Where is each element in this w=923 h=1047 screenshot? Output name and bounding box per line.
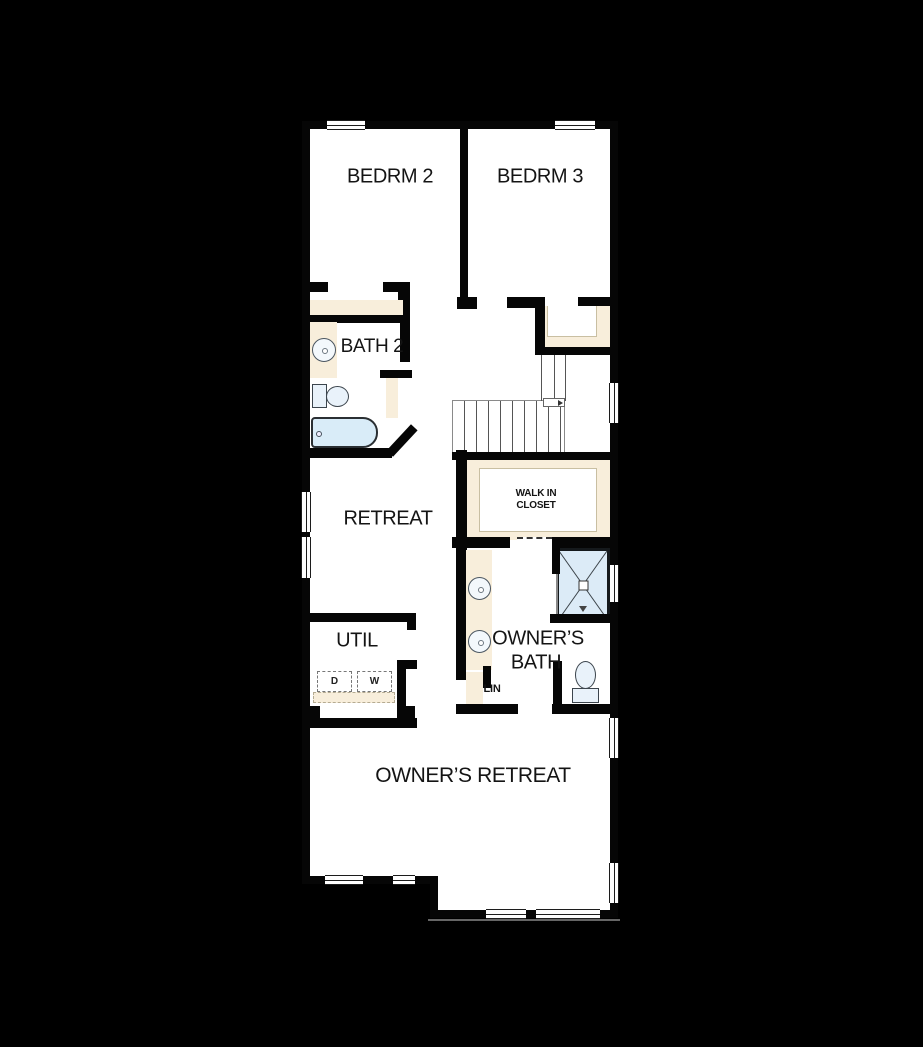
shower-drain-icon bbox=[579, 606, 587, 612]
linen-closet-floor bbox=[466, 672, 483, 704]
window bbox=[393, 875, 415, 885]
dryer-icon: D bbox=[317, 671, 352, 692]
window bbox=[609, 565, 619, 602]
shower-door-line bbox=[556, 574, 558, 614]
stair-flight-line bbox=[554, 355, 555, 401]
window bbox=[327, 120, 365, 130]
room-label-walk-in-closet: WALK IN CLOSET bbox=[516, 488, 557, 512]
window bbox=[609, 863, 619, 903]
toilet-tank-icon bbox=[312, 384, 327, 408]
room-label-retreat: RETREAT bbox=[343, 508, 432, 531]
dryer-label: D bbox=[331, 676, 338, 687]
wall-bath2-door-stub bbox=[380, 370, 412, 378]
floor-area-lower-right bbox=[430, 850, 614, 914]
wall-bedroom-divider-stub bbox=[457, 297, 477, 309]
washer-icon: W bbox=[357, 671, 392, 692]
window bbox=[536, 909, 600, 919]
toilet-bowl-icon bbox=[575, 661, 596, 689]
room-label-bedrm3: BEDRM 3 bbox=[497, 166, 583, 189]
wall-bath2-bottom bbox=[302, 448, 392, 458]
window bbox=[555, 120, 595, 130]
stairs bbox=[452, 400, 565, 453]
wall-util-bottom bbox=[306, 718, 417, 728]
wall-wic-left bbox=[456, 450, 467, 550]
stair-direction-arrow-icon bbox=[558, 400, 563, 406]
wall-wic-top bbox=[452, 452, 614, 460]
bedrm2-closet-shelf bbox=[310, 300, 403, 315]
wall-exterior-bottom-left bbox=[302, 876, 438, 884]
wall-wic-bottom-left bbox=[452, 537, 510, 548]
wic-door-opening bbox=[517, 537, 552, 548]
room-label-owners-retreat: OWNER’S RETREAT bbox=[375, 764, 570, 788]
walk-in-closet-line2: CLOSET bbox=[516, 500, 557, 512]
window bbox=[609, 718, 619, 758]
wall-bedrm2-closet-left-stub bbox=[302, 282, 328, 292]
room-label-linen: LIN bbox=[483, 683, 500, 695]
window bbox=[609, 383, 619, 423]
room-label-util: UTIL bbox=[336, 630, 378, 653]
bathtub-icon bbox=[311, 417, 378, 448]
washer-label: W bbox=[370, 676, 379, 687]
porch-edge-line bbox=[428, 919, 620, 921]
wall-util-right-stub bbox=[406, 660, 417, 669]
wall-shower-left-stub bbox=[552, 548, 560, 574]
room-label-owners-bath-line1: OWNER’S bbox=[492, 628, 584, 651]
stair-flight-line bbox=[541, 355, 542, 401]
window bbox=[301, 492, 311, 532]
window bbox=[325, 875, 363, 885]
wall-util-top bbox=[306, 613, 416, 622]
wall-shower-bottom bbox=[550, 614, 614, 623]
wall-obath-bottom-left bbox=[456, 704, 518, 714]
wall-bedroom-divider bbox=[460, 129, 468, 298]
toilet-tank-icon bbox=[572, 688, 599, 703]
room-label-bedrm2: BEDRM 2 bbox=[347, 166, 433, 189]
window bbox=[486, 909, 526, 919]
sink-icon bbox=[312, 338, 336, 362]
room-label-owners-bath-line2: BATH bbox=[511, 652, 561, 675]
stair-flight-line bbox=[565, 355, 566, 401]
window bbox=[301, 537, 311, 578]
sink-icon bbox=[468, 630, 491, 653]
walk-in-closet-line1: WALK IN bbox=[516, 488, 557, 500]
wall-exterior-right bbox=[610, 121, 618, 918]
util-counter bbox=[313, 692, 395, 703]
wall-obath-left bbox=[456, 548, 466, 680]
wall-bedrm3-closet-bottom bbox=[538, 347, 614, 355]
bath2-linen-shelf bbox=[386, 378, 398, 418]
floor-plan: D W BEDRM 2 BEDRM 3 BATH 2 RETREAT WALK … bbox=[0, 0, 923, 1047]
wall-wic-bottom-right bbox=[552, 537, 614, 548]
sink-icon bbox=[468, 577, 491, 600]
stair-landing-marker bbox=[543, 398, 565, 407]
wall-util-top-stub bbox=[407, 613, 416, 630]
room-label-bath2: BATH 2 bbox=[341, 336, 404, 358]
toilet-bowl-icon bbox=[326, 386, 349, 407]
bedrm3-closet-inner bbox=[547, 306, 597, 337]
